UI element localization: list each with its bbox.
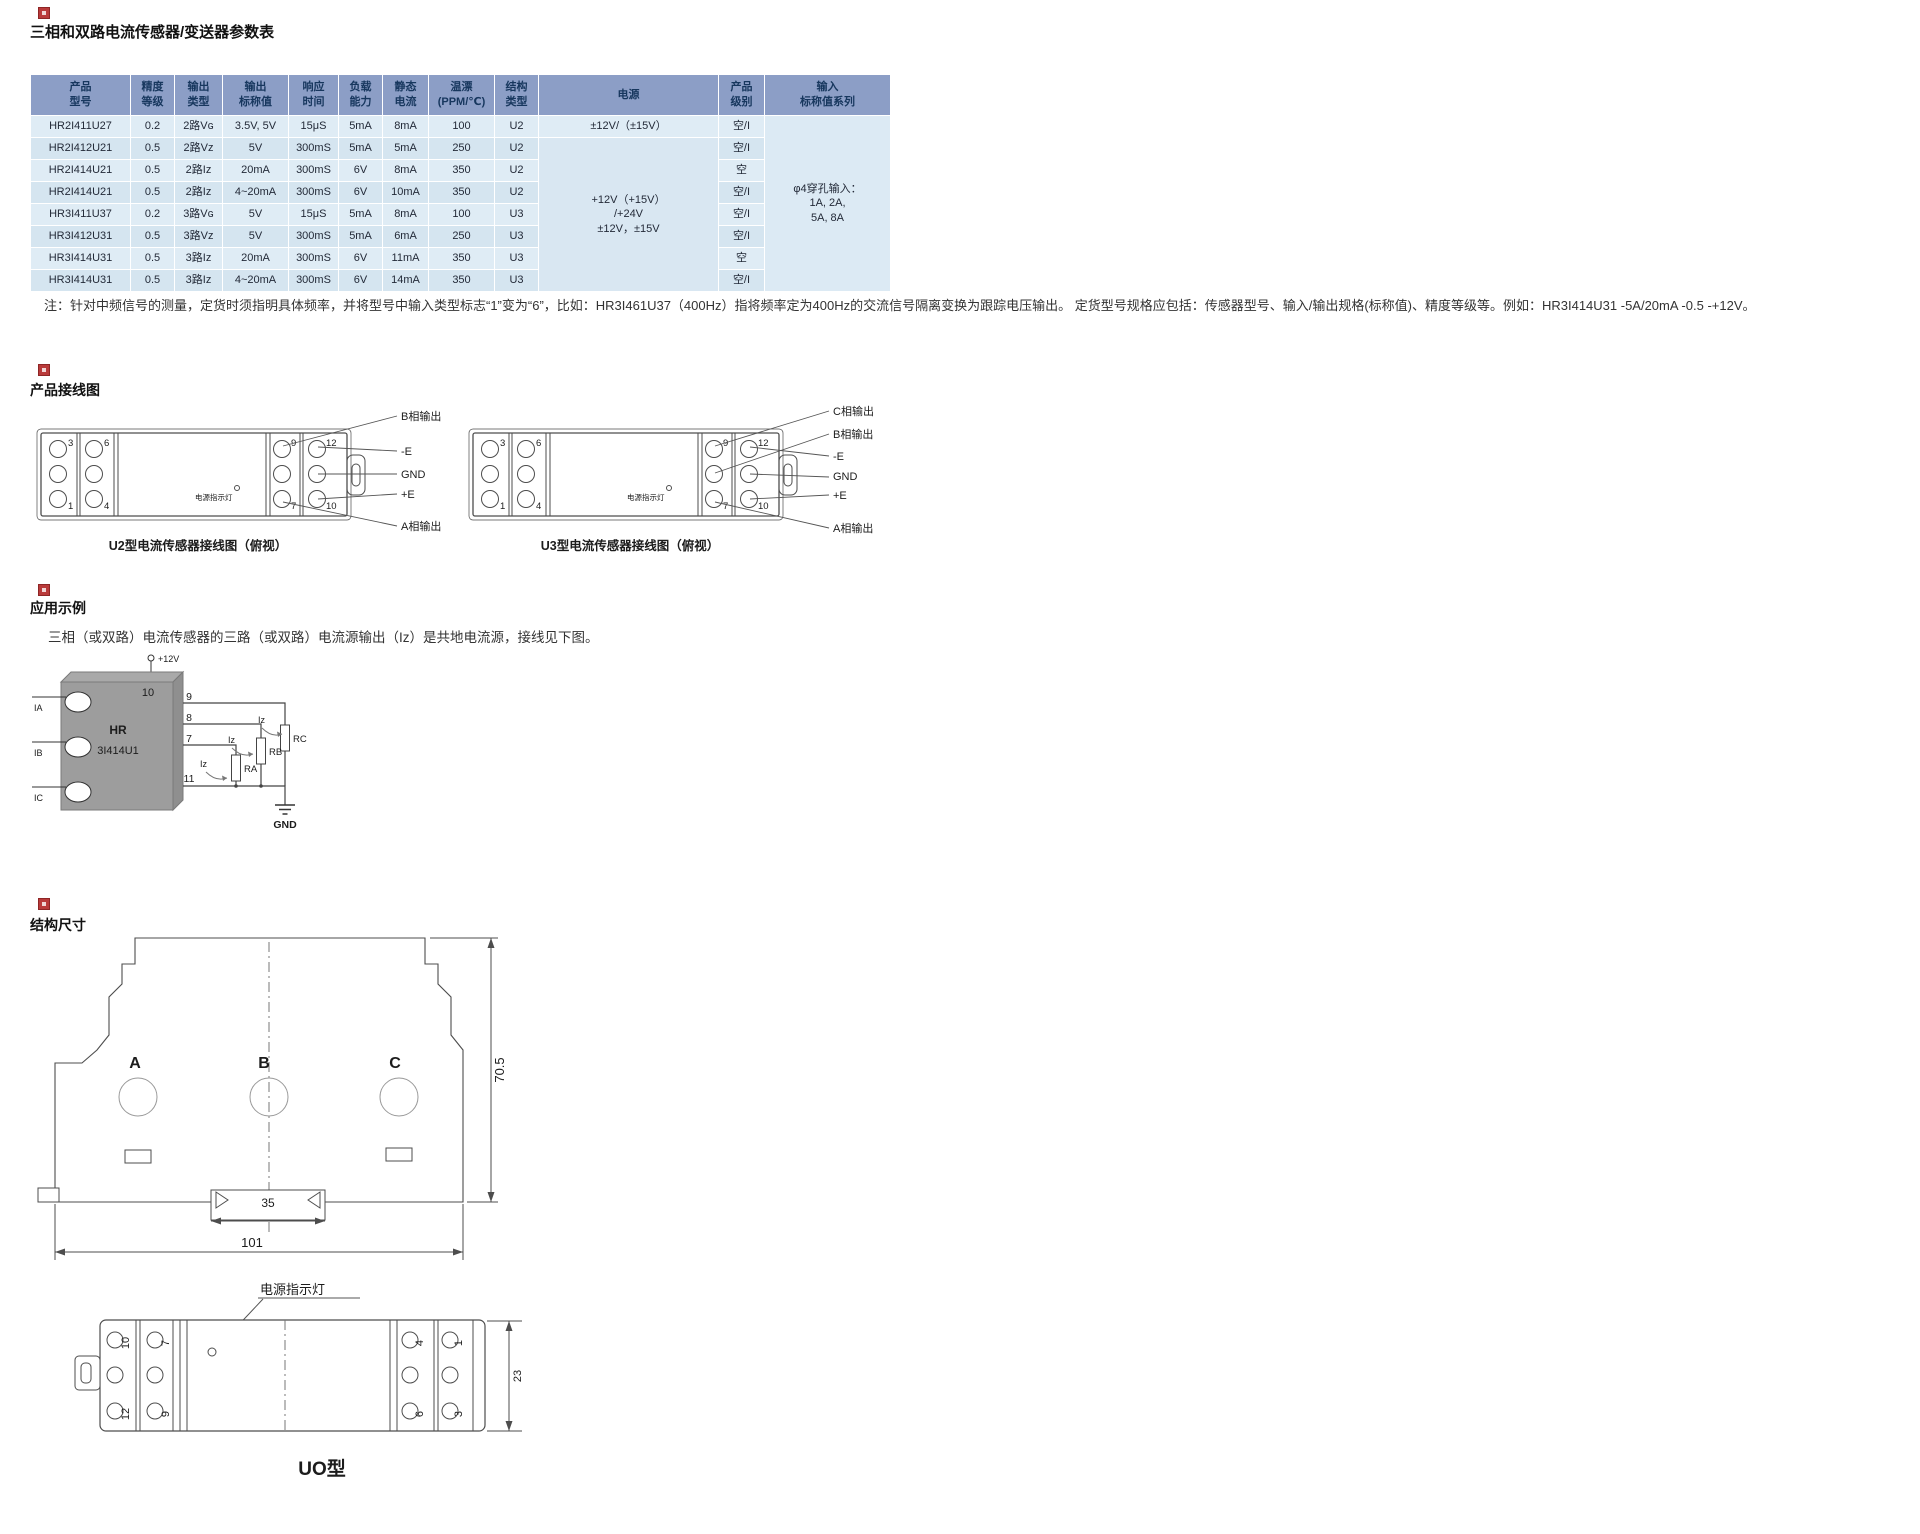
spec-cell: 5V <box>223 138 289 160</box>
terminal-number: 6 <box>414 1411 426 1417</box>
terminal-hole <box>706 491 723 508</box>
spec-cell: U2 <box>495 116 539 138</box>
terminal-number: 1 <box>68 501 73 512</box>
dim-text: 23 <box>512 1370 524 1382</box>
spec-cell: 4~20mA <box>223 270 289 292</box>
input-label: IA <box>34 703 43 713</box>
terminal-hole <box>706 441 723 458</box>
spec-cell: 250 <box>429 226 495 248</box>
pin-label: +E <box>401 489 415 501</box>
pin-label: C相输出 <box>833 404 874 418</box>
terminal-number: 6 <box>536 438 541 449</box>
chip-pin-numbers: 9 8 7 11 <box>184 691 195 785</box>
terminal-hole <box>50 466 67 483</box>
terminal-number: 12 <box>758 438 769 449</box>
chip-name-line2: 3I414U1 <box>97 745 139 757</box>
terminal-number: 4 <box>414 1340 426 1346</box>
spec-cell: 0.5 <box>131 160 175 182</box>
terminal-number: 3 <box>68 438 73 449</box>
through-hole <box>65 692 91 712</box>
terminal-hole <box>482 491 499 508</box>
spec-cell: ±12V/（±15V） <box>539 116 719 138</box>
dim-text: 35 <box>261 1196 275 1210</box>
power-led-label: 电源指示灯 <box>627 492 665 502</box>
pin-label: GND <box>833 471 858 483</box>
terminal-hole <box>482 466 499 483</box>
spec-cell: 空 <box>719 160 765 182</box>
front-view-drawing: A B C 35 101 <box>30 930 550 1275</box>
spec-body: HR2I411U270.22路Vɢ3.5V, 5V15μS5mA8mA100U2… <box>31 116 891 292</box>
spec-cell: 300mS <box>289 182 339 204</box>
hole-label: C <box>389 1055 401 1072</box>
section-marker-icon <box>38 584 50 596</box>
spec-row: HR2I412U210.52路Vz5V300mS5mA5mA250U2+12V（… <box>31 138 891 160</box>
pin-label: +E <box>833 490 847 502</box>
through-hole <box>65 782 91 802</box>
spec-cell: 11mA <box>383 248 429 270</box>
spec-cell: 6V <box>339 160 383 182</box>
spec-cell: 4~20mA <box>223 182 289 204</box>
bottom-view-drawing: 电源指示灯 10 12 7 9 4 6 1 3 <box>60 1268 540 1493</box>
spec-col-header: 响应 时间 <box>289 75 339 116</box>
terminal-number: 1 <box>500 501 505 512</box>
page-title: 三相和双路电流传感器/变送器参数表 <box>30 21 274 42</box>
chip-name-line1: HR <box>109 723 127 737</box>
spec-cell: 10mA <box>383 182 429 204</box>
spec-cell: HR2I412U21 <box>31 138 131 160</box>
spec-cell: 350 <box>429 270 495 292</box>
spec-cell: 15μS <box>289 204 339 226</box>
terminal-hole <box>86 491 103 508</box>
spec-col-header: 温漂 (PPM/℃) <box>429 75 495 116</box>
spec-cell: 20mA <box>223 160 289 182</box>
spec-cell: 300mS <box>289 160 339 182</box>
spec-cell: 3路Iz <box>175 270 223 292</box>
spec-col-header: 输出 标称值 <box>223 75 289 116</box>
spec-cell: 空/I <box>719 182 765 204</box>
input-label: IB <box>34 748 43 758</box>
spec-cell: 0.5 <box>131 138 175 160</box>
supply-label: +12V <box>158 654 179 664</box>
spec-col-header: 产品 型号 <box>31 75 131 116</box>
spec-cell: 0.5 <box>131 182 175 204</box>
spec-cell: HR2I411U27 <box>31 116 131 138</box>
u3-pin-labels: C相输出 B相输出 -E GND +E A相输出 <box>833 404 874 535</box>
current-label: Iz <box>258 715 266 725</box>
u2-caption: U2型电流传感器接线图（俯视） <box>109 538 287 553</box>
spec-cell: 3路Vz <box>175 226 223 248</box>
spec-cell: 2路Iz <box>175 182 223 204</box>
order-note: 注：针对中频信号的测量，定货时须指明具体频率，并将型号中输入类型标志“1”变为“… <box>30 294 1902 318</box>
spec-cell: 2路Vɢ <box>175 116 223 138</box>
spec-cell: 2路Vz <box>175 138 223 160</box>
spec-cell: 8mA <box>383 204 429 226</box>
u3-left-terminal-block: 3 6 1 4 <box>482 433 551 516</box>
pin-number: 7 <box>186 733 192 745</box>
spec-cell: 5mA <box>383 138 429 160</box>
spec-cell: 6V <box>339 248 383 270</box>
spec-cell: HR3I414U31 <box>31 248 131 270</box>
din-clip-slot <box>81 1363 91 1383</box>
terminal-hole <box>482 441 499 458</box>
input-label: IC <box>34 793 44 803</box>
terminal-number: 10 <box>326 501 337 512</box>
spec-cell: U2 <box>495 138 539 160</box>
terminal-number: 1 <box>453 1340 465 1346</box>
spec-cell: 5mA <box>339 226 383 248</box>
spec-cell: 14mA <box>383 270 429 292</box>
spec-cell: 6V <box>339 182 383 204</box>
spec-col-header: 结构 类型 <box>495 75 539 116</box>
section-marker-icon <box>38 364 50 376</box>
resistor-label: RB <box>269 747 282 758</box>
spec-cell: 空/I <box>719 226 765 248</box>
spec-cell: HR3I414U31 <box>31 270 131 292</box>
chip-pin-top: 10 <box>142 687 154 699</box>
spec-cell: HR3I411U37 <box>31 204 131 226</box>
spec-cell: 3路Iz <box>175 248 223 270</box>
spec-cell: 5mA <box>339 204 383 226</box>
spec-cell: 3路Vɢ <box>175 204 223 226</box>
spec-cell: 空/I <box>719 270 765 292</box>
pin-label: A相输出 <box>833 521 873 535</box>
terminal-hole <box>518 491 535 508</box>
spec-cell: U3 <box>495 204 539 226</box>
u2-pin-labels: B相输出 -E GND +E A相输出 <box>401 409 441 533</box>
spec-cell: 300mS <box>289 270 339 292</box>
spec-row: HR3I412U310.53路Vz5V300mS5mA6mA250U3空/I <box>31 226 891 248</box>
spec-cell: U3 <box>495 248 539 270</box>
spec-cell: 300mS <box>289 248 339 270</box>
pin-label: -E <box>833 451 844 463</box>
spec-cell: 350 <box>429 248 495 270</box>
terminal-hole <box>274 491 291 508</box>
spec-cell: 100 <box>429 116 495 138</box>
ground-symbol: GND <box>273 805 297 831</box>
terminal-number: 4 <box>536 501 541 512</box>
current-label: Iz <box>200 759 208 769</box>
slot-left <box>125 1150 151 1163</box>
terminal-number: 3 <box>500 438 505 449</box>
terminal-hole <box>518 441 535 458</box>
u2-left-terminal-block: 3 6 1 4 <box>50 433 119 516</box>
spec-cell: 空/I <box>719 204 765 226</box>
spec-cell: U2 <box>495 182 539 204</box>
resistor-label: RA <box>244 764 258 775</box>
spec-head: 产品 型号精度 等级输出 类型输出 标称值响应 时间负载 能力静态 电流温漂 (… <box>31 75 891 116</box>
dim-text: 101 <box>241 1235 263 1250</box>
spec-cell: 350 <box>429 160 495 182</box>
terminal-hole <box>274 441 291 458</box>
through-hole <box>65 737 91 757</box>
terminal-number: 10 <box>758 501 769 512</box>
spec-cell: 6V <box>339 270 383 292</box>
power-led-icon <box>667 486 672 491</box>
u3-caption: U3型电流传感器接线图（俯视） <box>541 538 719 553</box>
u3-wiring-diagram: 3 6 1 4 9 12 7 10 电源指示灯 C相 <box>462 402 902 560</box>
spec-cell: 250 <box>429 138 495 160</box>
spec-cell: +12V（+15V） /+24V ±12V，±15V <box>539 138 719 292</box>
spec-col-header: 精度 等级 <box>131 75 175 116</box>
terminal-hole <box>309 441 326 458</box>
spec-col-header: 电源 <box>539 75 719 116</box>
spec-cell: HR3I412U31 <box>31 226 131 248</box>
spec-cell: 0.2 <box>131 116 175 138</box>
pin-label: GND <box>401 469 426 481</box>
terminal-number: 7 <box>160 1340 172 1346</box>
power-led-label: 电源指示灯 <box>260 1282 325 1297</box>
terminal-hole <box>706 466 723 483</box>
bottom-view-caption: UO型 <box>298 1457 346 1480</box>
u2-wiring-diagram: 3 6 1 4 9 12 7 10 电源指示灯 B相 <box>30 402 470 560</box>
terminal-number: 4 <box>104 501 109 512</box>
spec-cell: 5V <box>223 204 289 226</box>
application-circuit: +12V 10 HR 3I414U1 IA IB IC 9 8 7 11 <box>30 645 360 850</box>
spec-cell: 5mA <box>339 138 383 160</box>
terminal-number: 7 <box>291 501 296 512</box>
spec-row: HR3I414U310.53路Iz20mA300mS6V11mA350U3空 <box>31 248 891 270</box>
terminal-number: 6 <box>104 438 109 449</box>
power-led-label: 电源指示灯 <box>195 492 233 502</box>
power-led-icon <box>235 486 240 491</box>
spec-cell: 300mS <box>289 226 339 248</box>
hole-label: B <box>258 1055 270 1072</box>
spec-cell: 0.5 <box>131 226 175 248</box>
din-clip-slot <box>352 464 360 486</box>
dim-depth: 23 <box>487 1321 524 1431</box>
spec-cell: 6mA <box>383 226 429 248</box>
spec-col-header: 输入 标称值系列 <box>765 75 891 116</box>
din-clip <box>347 455 365 495</box>
dim-text: 70.5 <box>492 1057 507 1082</box>
terminal-hole <box>86 441 103 458</box>
spec-cell: 2路Iz <box>175 160 223 182</box>
terminal-number: 10 <box>120 1337 132 1349</box>
supply-terminal <box>148 655 154 661</box>
spec-cell: HR2I414U21 <box>31 160 131 182</box>
spec-cell: U3 <box>495 226 539 248</box>
application-description: 三相（或双路）电流传感器的三路（或双路）电流源输出（Iz）是共地电流源，接线见下… <box>48 626 1048 646</box>
pin-label: B相输出 <box>833 427 873 441</box>
terminal-hole <box>741 441 758 458</box>
spec-row: HR2I411U270.22路Vɢ3.5V, 5V15μS5mA8mA100U2… <box>31 116 891 138</box>
pin-number: 8 <box>186 712 192 724</box>
spec-cell: 5mA <box>339 116 383 138</box>
current-label: Iz <box>228 735 236 745</box>
spec-cell: 8mA <box>383 160 429 182</box>
spec-table: 产品 型号精度 等级输出 类型输出 标称值响应 时间负载 能力静态 电流温漂 (… <box>30 74 891 292</box>
application-section-title: 应用示例 <box>30 598 86 618</box>
terminal-hole <box>274 466 291 483</box>
spec-row: HR3I411U370.23路Vɢ5V15μS5mA8mA100U3空/I <box>31 204 891 226</box>
terminal-hole <box>518 466 535 483</box>
terminal-hole <box>50 491 67 508</box>
terminal-hole <box>50 441 67 458</box>
resistor <box>232 755 241 781</box>
spec-col-header: 静态 电流 <box>383 75 429 116</box>
spec-cell: 0.5 <box>131 248 175 270</box>
wiring-section-title: 产品接线图 <box>30 380 100 400</box>
section-marker-icon <box>38 898 50 910</box>
spec-cell: 300mS <box>289 138 339 160</box>
terminal-number: 9 <box>160 1411 172 1417</box>
terminal-number: 3 <box>453 1411 465 1417</box>
u2-right-terminal-block: 9 12 7 10 <box>266 433 337 516</box>
spec-cell: 空/I <box>719 138 765 160</box>
spec-col-header: 产品 级别 <box>719 75 765 116</box>
spec-cell: 100 <box>429 204 495 226</box>
spec-cell: 20mA <box>223 248 289 270</box>
pin-label: -E <box>401 446 412 458</box>
spec-cell: HR2I414U21 <box>31 182 131 204</box>
spec-cell: 0.2 <box>131 204 175 226</box>
spec-col-header: 负载 能力 <box>339 75 383 116</box>
ground-label: GND <box>273 819 297 831</box>
spec-cell: 350 <box>429 182 495 204</box>
spec-cell: 8mA <box>383 116 429 138</box>
slot-right <box>386 1148 412 1161</box>
terminal-number: 12 <box>120 1408 132 1420</box>
spec-cell: 15μS <box>289 116 339 138</box>
hole-label: A <box>129 1055 141 1072</box>
pin-label: A相输出 <box>401 519 441 533</box>
resistor-label: RC <box>293 734 307 745</box>
terminal-number: 7 <box>723 501 728 512</box>
spec-col-header: 输出 类型 <box>175 75 223 116</box>
mount-tab <box>38 1188 59 1202</box>
power-led-icon <box>208 1348 216 1356</box>
spec-table-wrap: 产品 型号精度 等级输出 类型输出 标称值响应 时间负载 能力静态 电流温漂 (… <box>30 74 891 292</box>
spec-cell: U3 <box>495 270 539 292</box>
spec-cell: 3.5V, 5V <box>223 116 289 138</box>
spec-cell: φ4穿孔输入： 1A, 2A, 5A, 8A <box>765 116 891 292</box>
spec-row: HR2I414U210.52路Iz4~20mA300mS6V10mA350U2空… <box>31 182 891 204</box>
pin-label: B相输出 <box>401 409 441 423</box>
spec-cell: U2 <box>495 160 539 182</box>
spec-row: HR2I414U210.52路Iz20mA300mS6V8mA350U2空 <box>31 160 891 182</box>
spec-cell: 空/I <box>719 116 765 138</box>
spec-header-row: 产品 型号精度 等级输出 类型输出 标称值响应 时间负载 能力静态 电流温漂 (… <box>31 75 891 116</box>
terminal-hole <box>86 466 103 483</box>
spec-cell: 5V <box>223 226 289 248</box>
pin-number: 11 <box>184 773 195 785</box>
datasheet-page: 三相和双路电流传感器/变送器参数表 产品 型号精度 等级输出 类型输出 标称值响… <box>0 0 1920 1534</box>
spec-cell: 空 <box>719 248 765 270</box>
pin-number: 9 <box>186 691 192 703</box>
section-marker-icon <box>38 7 50 19</box>
resistor <box>257 738 266 764</box>
spec-row: HR3I414U310.53路Iz4~20mA300mS6V14mA350U3空… <box>31 270 891 292</box>
spec-cell: 0.5 <box>131 270 175 292</box>
